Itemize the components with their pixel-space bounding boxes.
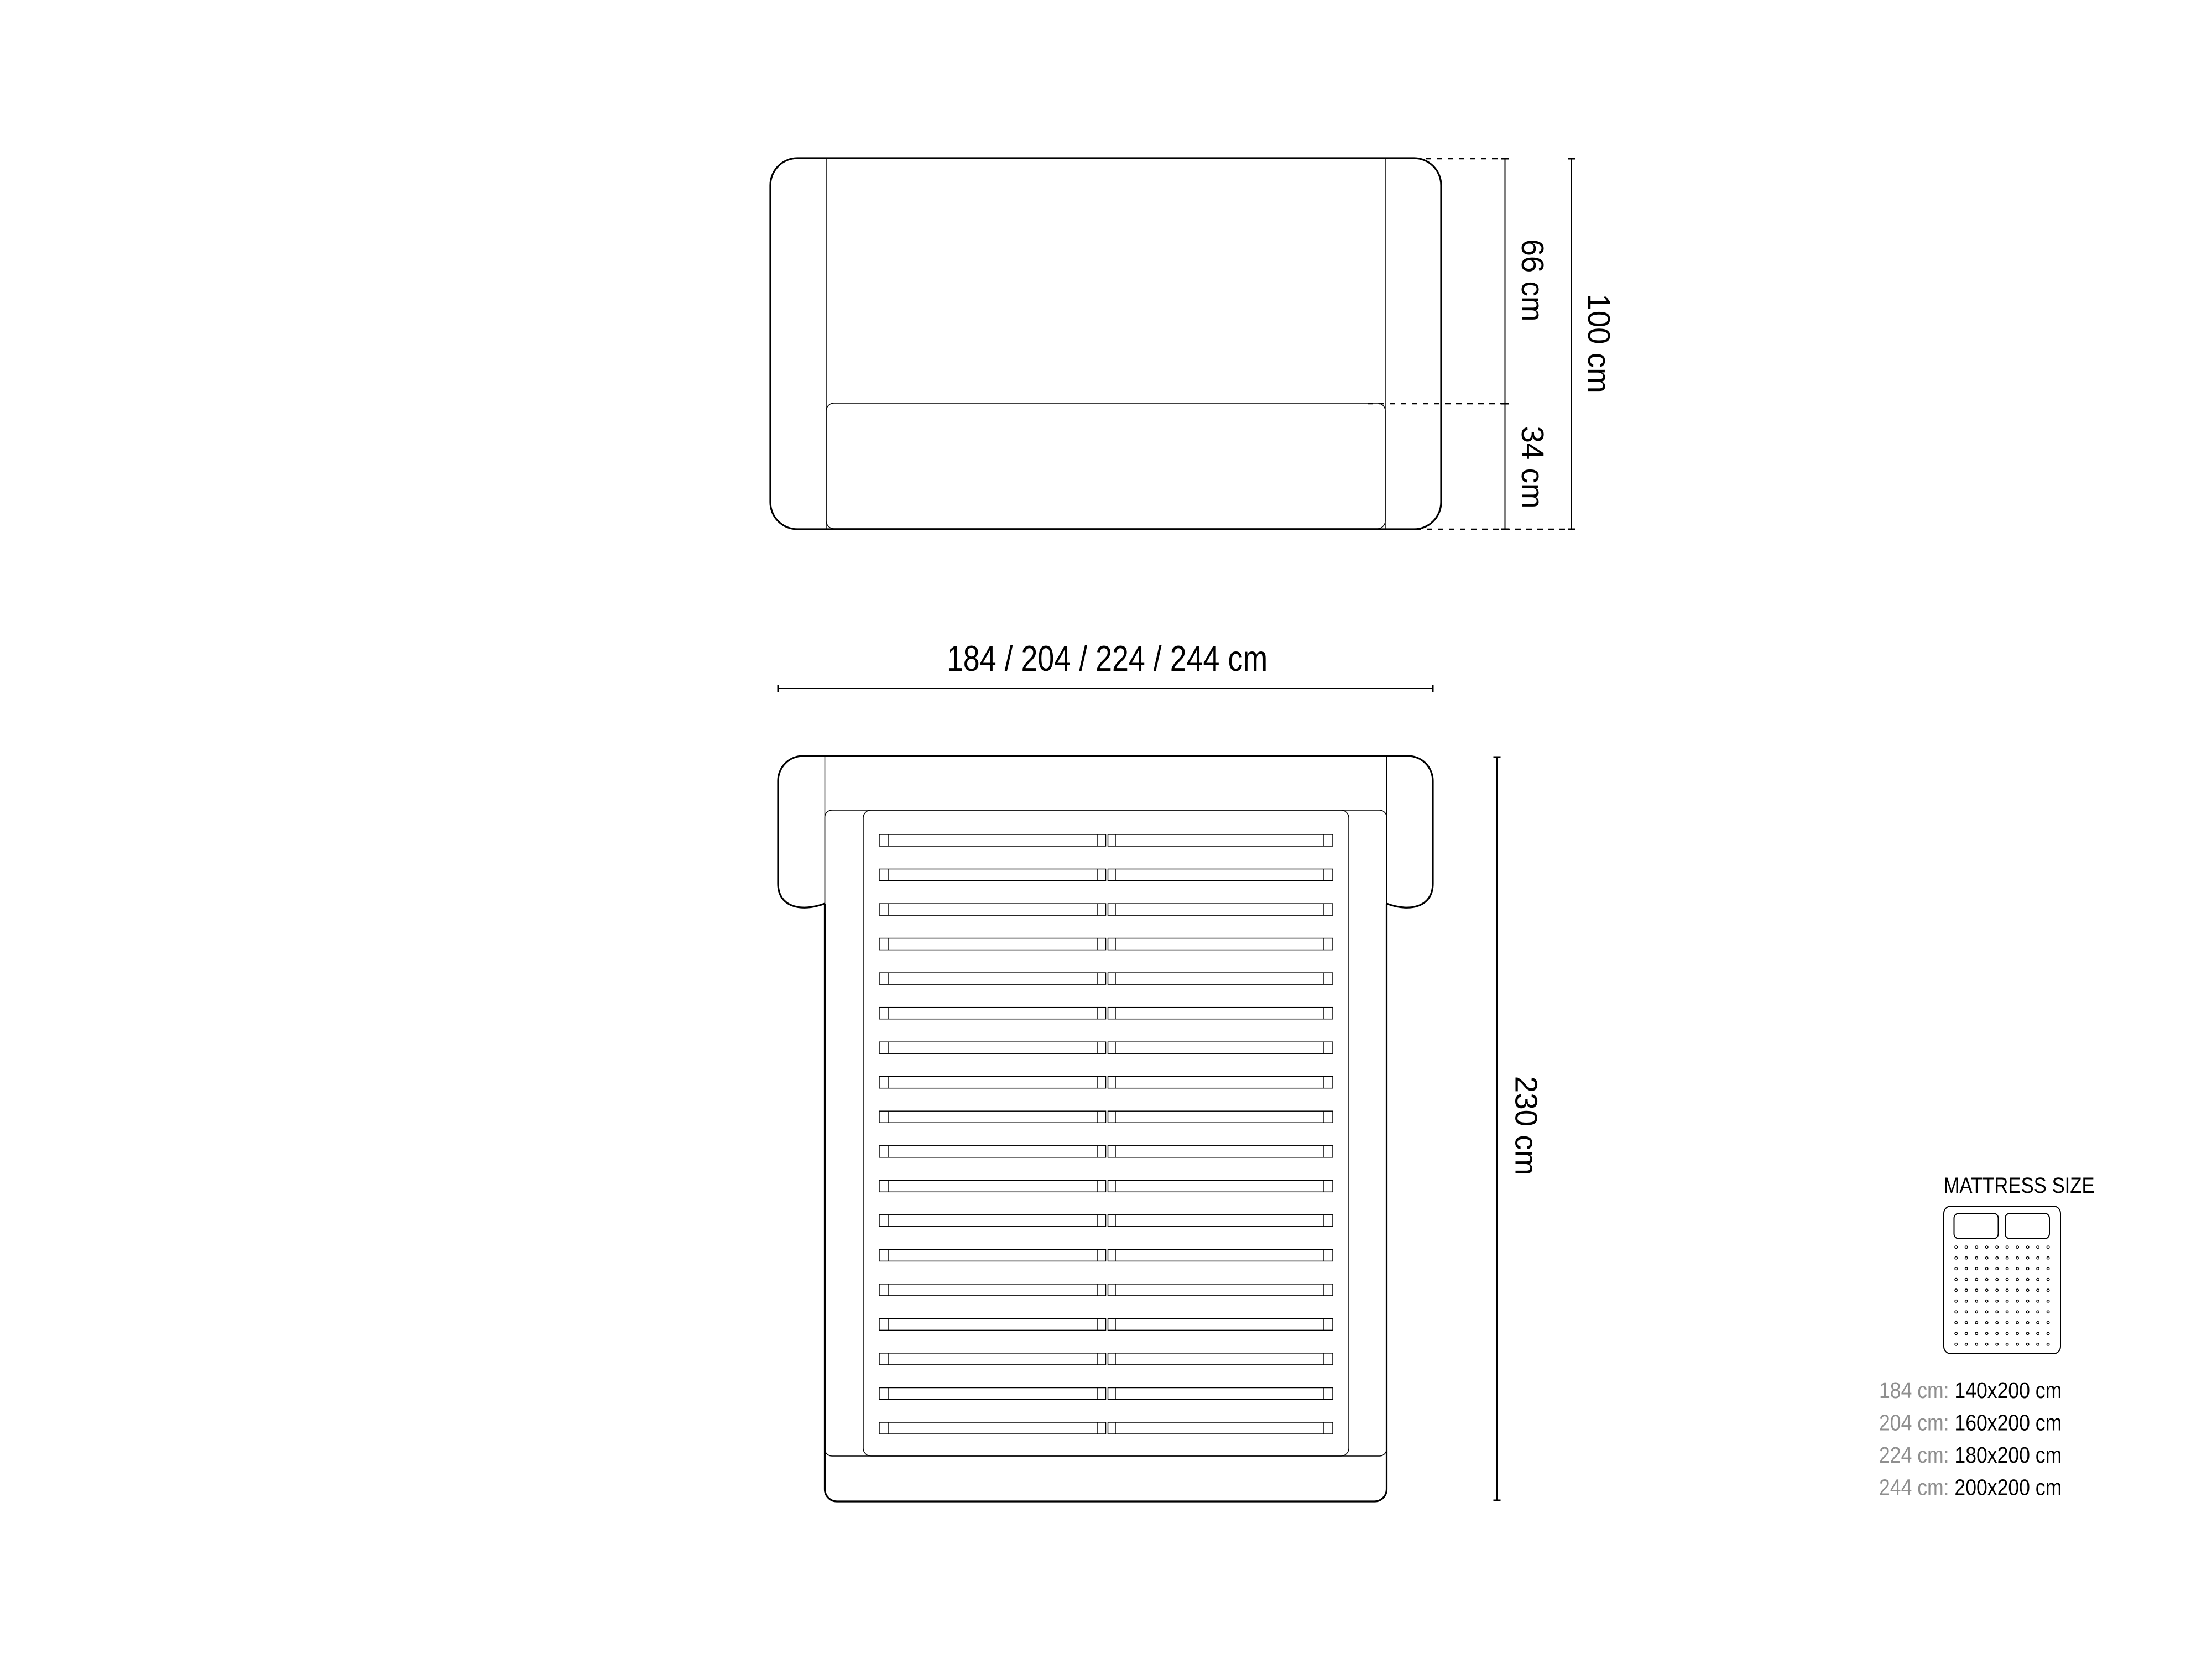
svg-text:244 cm: 200x200 cm: 244 cm: 200x200 cm [1879, 1475, 2062, 1500]
svg-text:224 cm: 180x200 cm: 224 cm: 180x200 cm [1879, 1443, 2062, 1468]
svg-text:184 / 204 / 224 / 244 cm: 184 / 204 / 224 / 244 cm [947, 638, 1267, 679]
svg-text:MATTRESS SIZE: MATTRESS SIZE [1943, 1173, 2094, 1198]
svg-text:34 cm: 34 cm [1515, 426, 1551, 509]
svg-text:66 cm: 66 cm [1515, 239, 1551, 322]
svg-text:204 cm: 160x200 cm: 204 cm: 160x200 cm [1879, 1410, 2062, 1436]
svg-text:230 cm: 230 cm [1509, 1076, 1544, 1175]
svg-text:100 cm: 100 cm [1582, 294, 1617, 393]
svg-text:184 cm: 140x200 cm: 184 cm: 140x200 cm [1879, 1378, 2062, 1404]
